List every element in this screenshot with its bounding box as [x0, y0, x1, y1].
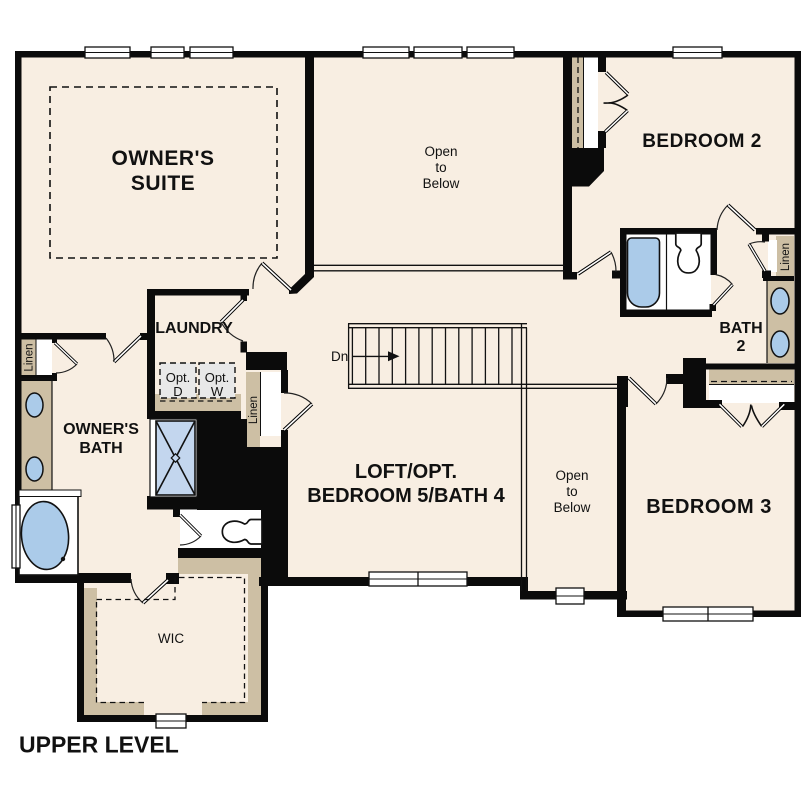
svg-text:OWNER'S: OWNER'S — [63, 421, 139, 438]
svg-text:Dn: Dn — [331, 349, 348, 364]
svg-text:WIC: WIC — [158, 631, 184, 646]
svg-text:Opt.: Opt. — [166, 370, 191, 385]
svg-text:OWNER'S: OWNER'S — [112, 147, 215, 170]
svg-text:D: D — [173, 384, 182, 399]
svg-text:BATH: BATH — [719, 320, 762, 337]
svg-text:BEDROOM 2: BEDROOM 2 — [642, 131, 762, 152]
svg-text:LOFT/OPT.: LOFT/OPT. — [355, 461, 457, 483]
svg-text:Opt.: Opt. — [205, 370, 230, 385]
svg-text:Below: Below — [554, 500, 591, 515]
svg-text:SUITE: SUITE — [131, 172, 195, 195]
svg-text:Below: Below — [423, 176, 460, 191]
svg-text:UPPER LEVEL: UPPER LEVEL — [19, 732, 179, 758]
svg-text:Open: Open — [555, 468, 588, 483]
svg-text:BATH: BATH — [79, 440, 122, 457]
svg-text:to: to — [435, 160, 446, 175]
svg-text:Linen: Linen — [24, 343, 36, 371]
svg-text:BEDROOM 3: BEDROOM 3 — [646, 496, 772, 518]
svg-text:Linen: Linen — [248, 396, 260, 424]
svg-text:W: W — [211, 384, 224, 399]
svg-text:Linen: Linen — [780, 243, 792, 271]
svg-text:2: 2 — [737, 338, 746, 355]
svg-text:LAUNDRY: LAUNDRY — [155, 320, 233, 337]
svg-text:Open: Open — [424, 144, 457, 159]
svg-text:BEDROOM 5/BATH 4: BEDROOM 5/BATH 4 — [307, 485, 505, 507]
svg-text:to: to — [566, 484, 577, 499]
